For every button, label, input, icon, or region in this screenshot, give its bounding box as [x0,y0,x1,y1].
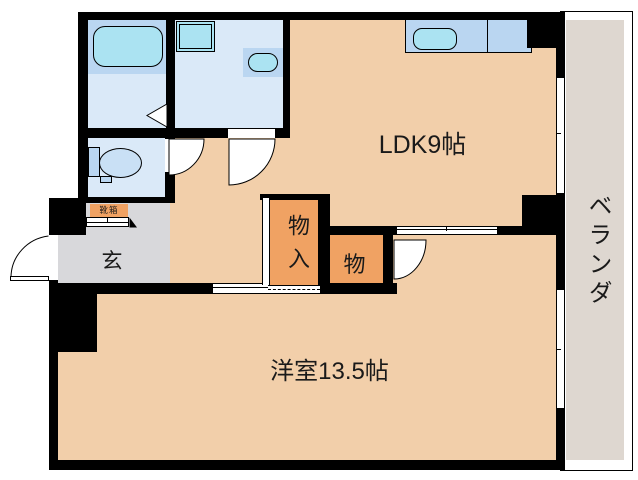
closet-front-sliding [268,285,320,294]
front-door-leaf [10,276,49,281]
wall-entrance-corner [49,198,86,235]
wall-bath-right [166,20,175,138]
wall-between-closets [318,200,330,290]
bathtub [93,26,163,67]
entrance-step [86,217,129,227]
western-room-sliding-door [213,283,268,294]
front-door-swing [11,236,49,277]
western-room-label: 洋室13.5帖 [227,351,432,386]
wall-kitchen-corner [527,12,563,48]
western-room-sliding-door-rail [213,287,268,288]
washing-machine-inner [179,24,212,49]
kitchen-counter-divider [487,20,488,53]
entrance-label: 玄 [90,245,134,275]
ldk-window [556,78,565,193]
western-room-window [556,290,565,408]
shoe-box: 靴箱 [90,204,128,217]
wall-right-b [556,193,565,290]
wall-ldk-west-divider-b [522,195,556,235]
western-room-window-tick [557,349,561,350]
toilet-base [100,176,112,183]
washroom-door-opening [228,129,275,138]
floor-plan: 靴箱 [0,0,638,480]
veranda-label: ベランダ [580,193,615,323]
shoe-box-label: 靴箱 [90,204,128,217]
entrance-step-tick [107,218,108,222]
ldk-sliding-door [397,226,497,235]
ldk-window-tick [557,133,561,134]
entrance-floor-lower [58,235,86,287]
wall-toilet-bottom [78,197,175,203]
closet-small-label: 物 [332,247,377,279]
closet-side-sliding [262,198,270,285]
wall-washroom-right [283,12,290,138]
ldk-sliding-door-tick [446,227,447,231]
wall-sanitary-left [78,12,88,203]
wall-under-closets [320,283,397,294]
wall-closet-small-right [383,226,393,290]
closet-front-dashed-line [268,289,320,290]
entrance-step-line [87,222,128,223]
toilet-bowl [99,148,142,178]
wash-basin [248,53,278,72]
front-door-opening [49,235,58,280]
ldk-sliding-door-rail [397,229,497,230]
toilet-door-opening [165,139,175,172]
closet-large-label: 物入 [281,214,313,286]
wall-west-corner-block [49,283,97,352]
washing-machine [176,21,215,52]
wall-top [78,12,565,20]
wall-bottom [49,460,565,470]
ldk-label: LDK9帖 [350,125,495,161]
wall-right-c [556,408,565,460]
kitchen-sink [413,28,457,50]
